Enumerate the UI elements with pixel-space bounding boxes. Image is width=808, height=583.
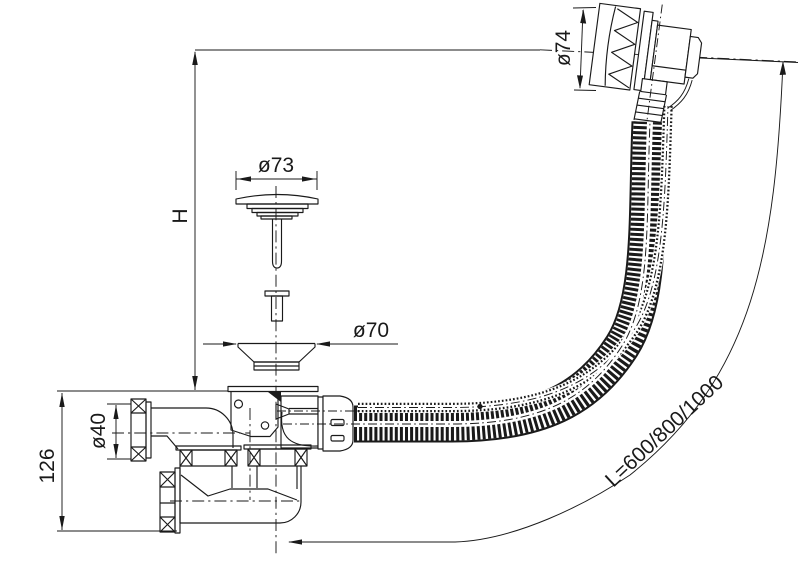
cable-stop-dot [477, 404, 482, 409]
screw-hole [261, 422, 268, 429]
overflow-knob [589, 3, 640, 90]
tee-top-flange [228, 387, 318, 392]
cleanout-nut [160, 472, 175, 532]
adapter-head [265, 291, 289, 296]
label-plug-diameter: ø73 [258, 154, 294, 177]
dim-l-curve [289, 62, 783, 542]
cable-end-fitting [276, 404, 322, 419]
elbow-nut [180, 450, 237, 466]
overflow-outlet [641, 79, 667, 95]
tee-outlet-socket [281, 396, 318, 448]
bath-drain-technical-drawing: H ø73 ø74 ø70 ø40 126 L=600/800/1000 [0, 0, 808, 583]
label-flange-diameter: ø70 [353, 319, 389, 342]
plug-cap [236, 195, 318, 205]
plug-stem [273, 219, 282, 268]
overflow-head [585, 0, 705, 127]
dimension-lines [57, 8, 798, 545]
siphon-assembly [131, 387, 353, 534]
outlet-nut [131, 399, 146, 461]
hose-union-nut [323, 396, 353, 451]
drain-plug [236, 195, 318, 322]
label-overflow-diameter: ø74 [552, 30, 575, 67]
label-trap-height: 126 [36, 448, 59, 483]
dim-40-extensions [107, 404, 131, 459]
label-hose-length: L=600/800/1000 [601, 371, 728, 492]
label-outlet-diameter: ø40 [87, 413, 110, 449]
drain-flange [238, 344, 315, 371]
outlet-elbow [151, 408, 233, 449]
tee-nut [248, 449, 307, 466]
label-height-h: H [169, 208, 192, 223]
tee-body [231, 392, 278, 437]
dim-l-top-extension [700, 58, 798, 63]
corrugated-hose [277, 106, 668, 424]
technical-drawing-page: H ø73 ø74 ø70 ø40 126 L=600/800/1000 [0, 0, 808, 583]
adapter-stem [272, 296, 283, 321]
screw-hole [235, 400, 243, 408]
centerlines [112, 50, 798, 557]
